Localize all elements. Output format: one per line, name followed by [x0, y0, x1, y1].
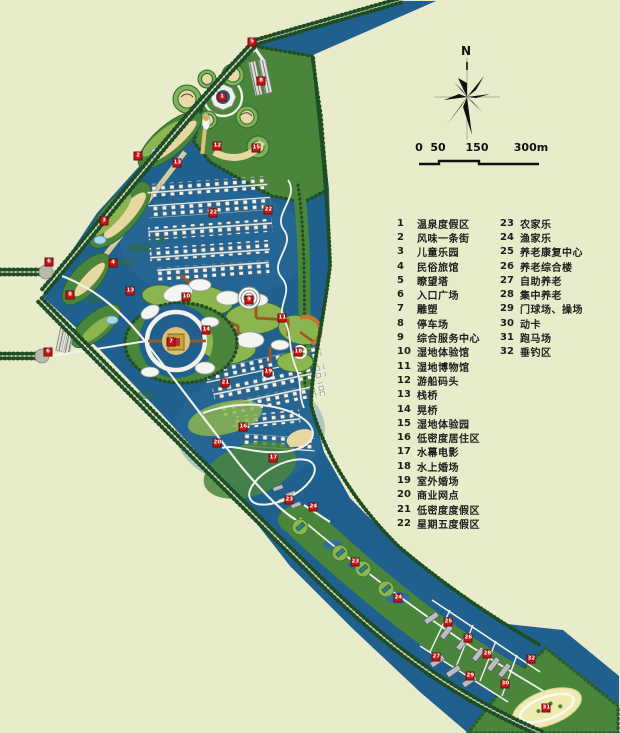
scale-label: 150 [466, 141, 489, 154]
legend-item-number: 10 [397, 346, 417, 357]
legend-item-label: 儿童乐园 [417, 244, 459, 259]
legend-item-number: 30 [500, 318, 520, 329]
map-marker: 24 [394, 594, 403, 603]
legend-item-number: 25 [500, 246, 520, 257]
legend-item-label: 跑马场 [520, 330, 552, 345]
legend-item: 15 湿地体验园 [397, 416, 480, 430]
map-marker: 13 [126, 287, 135, 296]
legend-item-number: 29 [500, 303, 520, 314]
map-marker: 6 [44, 348, 53, 357]
map-marker: 8 [257, 77, 266, 86]
map-marker: 24 [309, 503, 318, 512]
legend-item-label: 雕塑 [417, 301, 438, 316]
legend-item-number: 4 [397, 261, 417, 272]
legend-item-number: 32 [500, 346, 520, 357]
map-marker: 22 [264, 206, 273, 215]
map-marker: 13 [173, 159, 182, 168]
scale-label: 0 [415, 141, 423, 154]
legend-item-label: 垂钓区 [520, 344, 552, 359]
north-arrow-icon [432, 50, 502, 145]
map-marker: 4 [109, 259, 118, 268]
legend-item-label: 晃桥 [417, 402, 438, 417]
legend-item-label: 温泉度假区 [417, 216, 470, 231]
map-marker: 32 [527, 655, 536, 664]
legend-item-label: 民俗旅馆 [417, 259, 459, 274]
map-marker: 16 [239, 423, 248, 432]
map-marker: 15 [252, 144, 261, 153]
legend-item: 21 低密度度假区 [397, 502, 480, 516]
map-marker: 29 [466, 672, 475, 681]
legend-item-number: 12 [397, 375, 417, 386]
map-marker: 8 [66, 291, 75, 300]
legend-item: 11 湿地博物馆 [397, 359, 480, 373]
legend-item: 10 湿地体验馆 [397, 345, 480, 359]
legend-item-label: 集中养老 [520, 287, 562, 302]
map-marker: 12 [213, 142, 222, 151]
legend-item-number: 31 [500, 332, 520, 343]
legend-item: 3 儿童乐园 [397, 245, 480, 259]
legend-item: 29 门球场、操场 [500, 302, 583, 316]
legend-item-number: 15 [397, 418, 417, 429]
map-marker: 20 [213, 439, 222, 448]
legend-item: 19 室外婚场 [397, 473, 480, 487]
legend-item-number: 9 [397, 332, 417, 343]
legend-item-label: 室外婚场 [417, 473, 459, 488]
map-marker: 7 [167, 338, 176, 347]
map-marker: 25 [444, 618, 453, 627]
plan-drawing [0, 0, 620, 733]
site-plan: N 050150300m 1 温泉度假区 2 风味一条街 [0, 0, 620, 733]
legend-column-1: 1 温泉度假区 2 风味一条街 3 儿童乐园 4 民俗旅馆 5 瞭望塔 6 入口… [397, 216, 480, 531]
map-marker: 3 [100, 217, 109, 226]
legend-item-number: 7 [397, 303, 417, 314]
legend-item: 32 垂钓区 [500, 345, 583, 359]
legend-item-label: 水上婚场 [417, 459, 459, 474]
legend-item-number: 3 [397, 246, 417, 257]
map-marker: 30 [501, 680, 510, 689]
scale-bar-line [407, 155, 552, 169]
legend-item-number: 8 [397, 318, 417, 329]
legend-item: 17 水幕电影 [397, 445, 480, 459]
legend-item-number: 16 [397, 432, 417, 443]
legend-item-label: 星期五度假区 [417, 516, 480, 531]
legend-item-number: 24 [500, 232, 520, 243]
legend-item-label: 风味一条街 [417, 230, 470, 245]
legend-item-number: 6 [397, 289, 417, 300]
legend-item: 5 瞭望塔 [397, 273, 480, 287]
legend-item-label: 湿地体验馆 [417, 344, 470, 359]
map-marker: 10 [182, 293, 191, 302]
map-marker: 9 [245, 296, 254, 305]
legend-item-number: 17 [397, 446, 417, 457]
legend-item: 26 养老综合楼 [500, 259, 583, 273]
legend-item-label: 自助养老 [520, 273, 562, 288]
map-marker: 5 [248, 38, 257, 47]
legend-item: 22 星期五度假区 [397, 516, 480, 530]
map-marker: 23 [285, 496, 294, 505]
legend-item-label: 湿地体验园 [417, 416, 470, 431]
legend-item: 4 民俗旅馆 [397, 259, 480, 273]
map-marker: 31 [542, 704, 551, 713]
scale-label: 300m [514, 141, 548, 154]
legend-item-number: 28 [500, 289, 520, 300]
legend-item-label: 商业网点 [417, 487, 459, 502]
map-marker: 6 [45, 258, 54, 267]
legend-item: 18 水上婚场 [397, 459, 480, 473]
map-marker: 27 [432, 653, 441, 662]
legend-item-number: 1 [397, 218, 417, 229]
legend-item: 23 农家乐 [500, 216, 583, 230]
map-marker: 23 [351, 558, 360, 567]
legend-item-number: 21 [397, 504, 417, 515]
legend-item-label: 湿地博物馆 [417, 359, 470, 374]
legend-item-label: 游船码头 [417, 373, 459, 388]
legend-item-label: 停车场 [417, 316, 449, 331]
legend-item-number: 18 [397, 461, 417, 472]
legend-item-number: 27 [500, 275, 520, 286]
legend-item: 6 入口广场 [397, 287, 480, 301]
legend-item: 20 商业网点 [397, 488, 480, 502]
scale-label: 50 [430, 141, 445, 154]
legend-item-label: 低密度度假区 [417, 502, 480, 517]
legend-item-label: 栈桥 [417, 387, 438, 402]
legend-item-number: 2 [397, 232, 417, 243]
legend-item-label: 综合服务中心 [417, 330, 480, 345]
legend-item-label: 养老康复中心 [520, 244, 583, 259]
legend-item: 16 低密度居住区 [397, 430, 480, 444]
map-marker: 2 [134, 152, 143, 161]
legend-item-label: 渔家乐 [520, 230, 552, 245]
legend-item: 2 风味一条街 [397, 230, 480, 244]
legend-item-number: 14 [397, 404, 417, 415]
map-marker: 19 [264, 368, 273, 377]
legend-item: 12 游船码头 [397, 373, 480, 387]
legend-item-label: 瞭望塔 [417, 273, 449, 288]
legend-item: 25 养老康复中心 [500, 245, 583, 259]
map-marker: 18 [294, 348, 303, 357]
map-marker: 1 [218, 93, 227, 102]
legend-item-label: 入口广场 [417, 287, 459, 302]
legend-item-number: 22 [397, 518, 417, 529]
legend-item: 8 停车场 [397, 316, 480, 330]
legend-item-label: 低密度居住区 [417, 430, 480, 445]
legend-item: 28 集中养老 [500, 287, 583, 301]
map-marker: 28 [483, 650, 492, 659]
legend-item-number: 11 [397, 361, 417, 372]
legend-item: 30 动卡 [500, 316, 583, 330]
legend-item-label: 门球场、操场 [520, 301, 583, 316]
map-marker: 14 [202, 326, 211, 335]
legend-item: 14 晃桥 [397, 402, 480, 416]
legend-item: 27 自助养老 [500, 273, 583, 287]
legend-item-number: 26 [500, 261, 520, 272]
legend-item-number: 20 [397, 489, 417, 500]
scale-bar: 050150300m [407, 141, 552, 171]
legend-item: 9 综合服务中心 [397, 330, 480, 344]
legend-item: 31 跑马场 [500, 330, 583, 344]
legend-item-number: 5 [397, 275, 417, 286]
map-marker: 26 [464, 634, 473, 643]
legend-item-number: 23 [500, 218, 520, 229]
legend-item-number: 19 [397, 475, 417, 486]
map-marker: 22 [209, 209, 218, 218]
map-marker: 21 [221, 379, 230, 388]
legend-item-label: 农家乐 [520, 216, 552, 231]
legend-column-2: 23 农家乐 24 渔家乐 25 养老康复中心 26 养老综合楼 27 自助养老… [500, 216, 583, 359]
map-marker: 11 [278, 314, 287, 323]
legend-item-label: 水幕电影 [417, 444, 459, 459]
legend-item-label: 养老综合楼 [520, 259, 573, 274]
legend-item: 13 栈桥 [397, 388, 480, 402]
map-marker: 17 [269, 454, 278, 463]
legend-item-number: 13 [397, 389, 417, 400]
legend-item: 7 雕塑 [397, 302, 480, 316]
legend-item-label: 动卡 [520, 316, 541, 331]
legend-item: 1 温泉度假区 [397, 216, 480, 230]
legend-item: 24 渔家乐 [500, 230, 583, 244]
